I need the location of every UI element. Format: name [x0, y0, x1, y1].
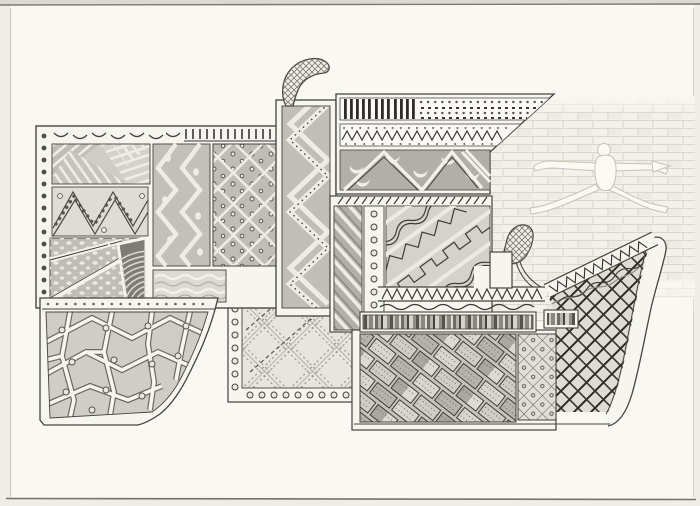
barcode-bar-short — [544, 310, 578, 328]
plaid-bead-row — [247, 392, 349, 398]
band-crescent-triangles — [340, 150, 490, 190]
chimney-block — [490, 252, 512, 288]
panel-zigzag-beads — [52, 187, 148, 236]
bead-strip — [364, 206, 384, 330]
band-zigzag-row — [340, 124, 521, 146]
panel-straw-patches — [52, 144, 150, 184]
panel-chevron-dots — [153, 144, 210, 266]
barcode-bar — [360, 312, 536, 332]
paper-edge-bottom — [6, 499, 696, 500]
panel-waves — [153, 270, 226, 302]
left-panel-block — [36, 126, 278, 308]
panel-spots — [50, 238, 150, 306]
scanned-drawing — [0, 0, 700, 506]
basket-weave-panel — [360, 334, 516, 422]
chimney-step — [474, 266, 490, 288]
panel-diamond-grid — [213, 144, 277, 266]
drawing-canvas — [0, 0, 700, 506]
figure-torso — [595, 155, 616, 190]
stripe-strip — [334, 206, 362, 330]
band-vertical-bars — [340, 98, 550, 120]
